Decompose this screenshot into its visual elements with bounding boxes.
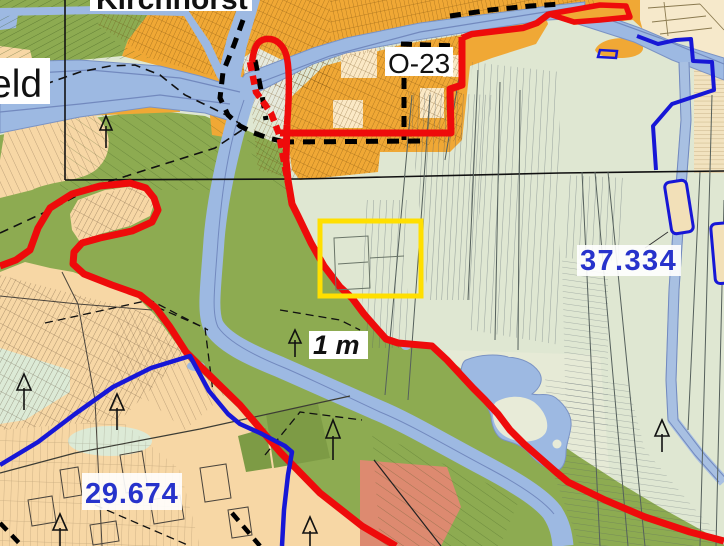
svg-text:O-23: O-23 bbox=[388, 48, 450, 79]
svg-text:eld: eld bbox=[0, 63, 42, 106]
svg-text:37.334: 37.334 bbox=[580, 245, 677, 277]
svg-text:Kirchhorst: Kirchhorst bbox=[96, 0, 248, 16]
svg-text:29.674: 29.674 bbox=[85, 478, 179, 510]
svg-text:1 m: 1 m bbox=[313, 330, 360, 360]
